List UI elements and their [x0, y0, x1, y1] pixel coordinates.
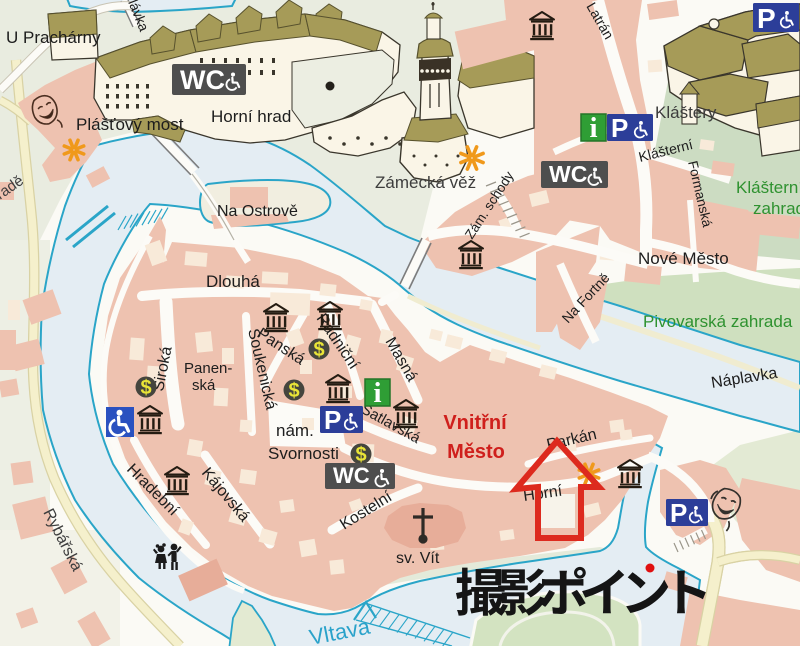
svg-text:Panen-: Panen- [184, 360, 232, 377]
svg-text:Horní hrad: Horní hrad [211, 107, 291, 126]
svg-text:U Prachárny: U Prachárny [6, 28, 101, 47]
svg-text:ská: ská [192, 377, 216, 394]
svg-text:Na Ostrově: Na Ostrově [217, 203, 298, 220]
svg-text:P: P [611, 113, 628, 143]
svg-text:Vnitřní: Vnitřní [443, 412, 508, 434]
svg-text:Zámecká věž: Zámecká věž [375, 173, 476, 192]
svg-text:WC: WC [549, 161, 587, 187]
svg-text:P: P [670, 498, 687, 528]
svg-text:sv. Vít: sv. Vít [396, 550, 440, 567]
svg-text:Město: Město [447, 441, 505, 463]
svg-text:P: P [324, 405, 341, 435]
svg-text:WC: WC [333, 463, 370, 488]
svg-text:Klášterní: Klášterní [736, 178, 800, 197]
svg-text:P: P [757, 3, 776, 34]
svg-text:Dlouhá: Dlouhá [206, 272, 260, 291]
svg-text:Plášťový most: Plášťový most [76, 115, 184, 134]
svg-text:Kláštery: Kláštery [655, 103, 717, 122]
svg-text:i: i [589, 112, 597, 144]
svg-text:WC: WC [180, 65, 225, 95]
svg-text:i: i [373, 377, 381, 409]
svg-text:Pivovarská zahrada: Pivovarská zahrada [643, 312, 793, 331]
svg-text:nám.: nám. [276, 421, 314, 440]
svg-text:zahrada: zahrada [753, 199, 800, 218]
svg-text:Svornosti: Svornosti [268, 444, 339, 463]
svg-text:Nové Město: Nové Město [638, 249, 729, 268]
